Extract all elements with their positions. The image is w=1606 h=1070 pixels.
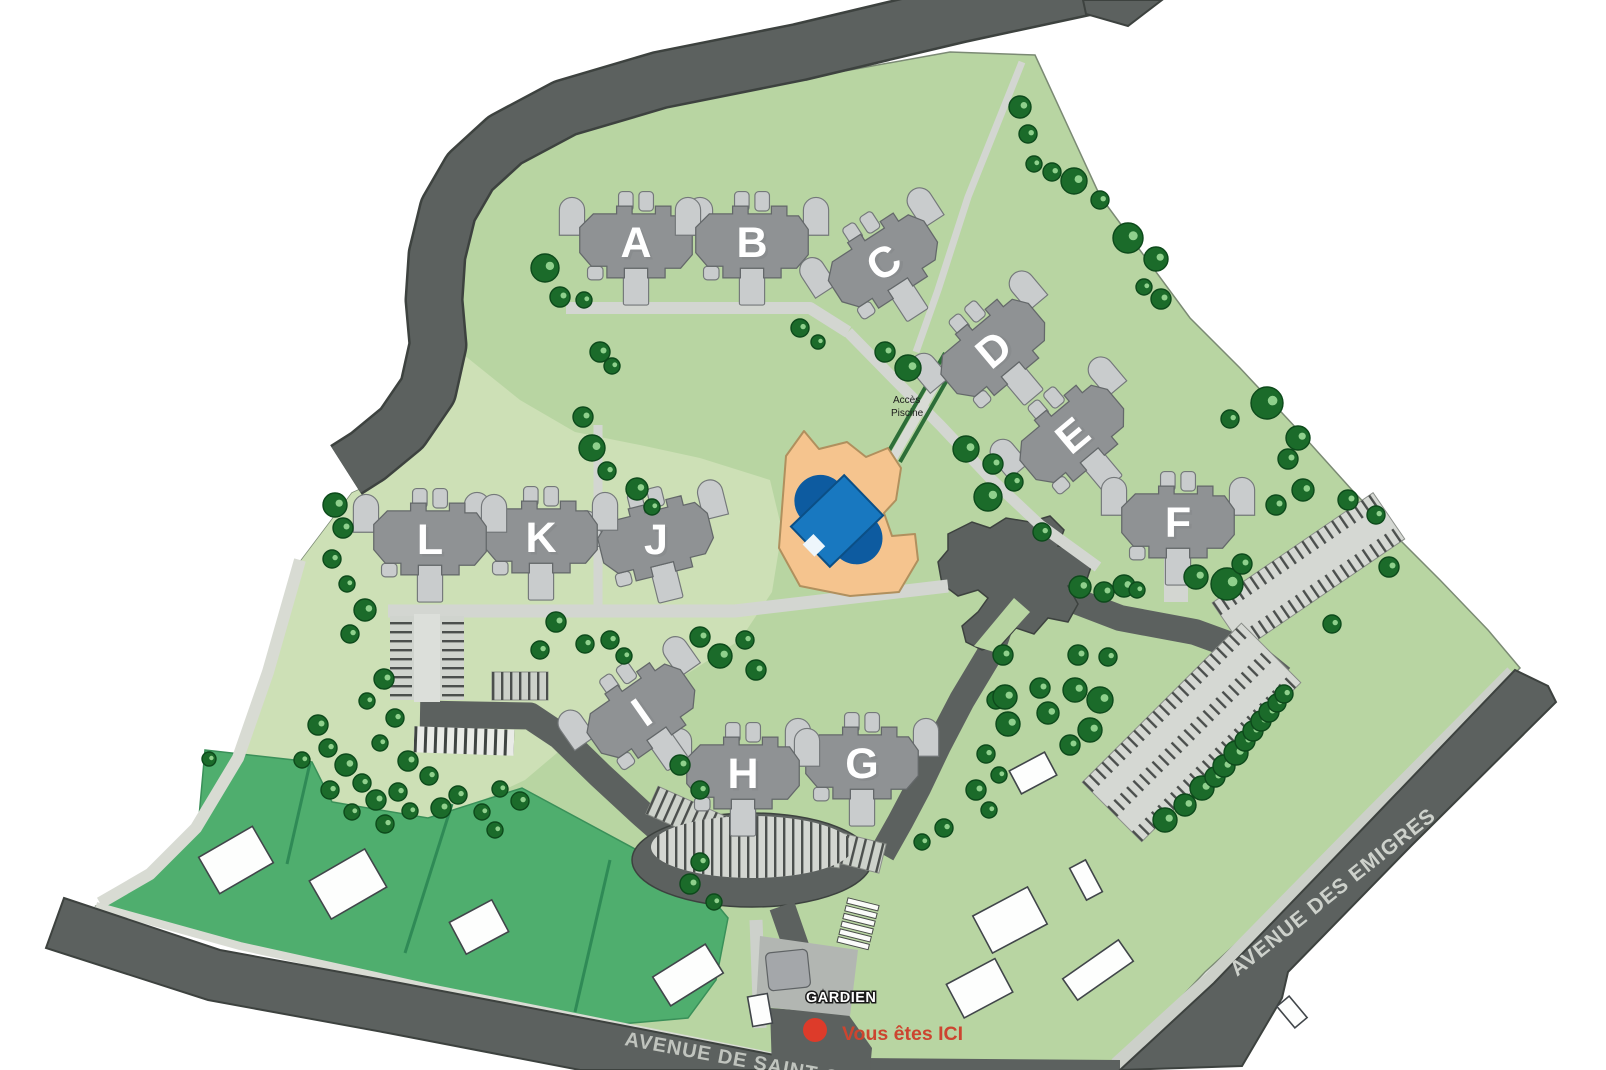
svg-text:Vous êtes ICI: Vous êtes ICI <box>842 1023 963 1045</box>
svg-text:GARDIEN: GARDIEN <box>806 990 876 1006</box>
svg-text:H: H <box>727 750 758 798</box>
svg-text:A: A <box>620 219 651 267</box>
svg-text:Piscine: Piscine <box>891 408 924 419</box>
svg-text:J: J <box>644 516 668 564</box>
svg-text:F: F <box>1165 499 1191 547</box>
svg-text:Accès: Accès <box>893 395 920 406</box>
svg-text:K: K <box>525 514 556 562</box>
svg-text:B: B <box>736 219 767 267</box>
svg-text:L: L <box>417 516 443 564</box>
svg-text:G: G <box>845 740 878 788</box>
